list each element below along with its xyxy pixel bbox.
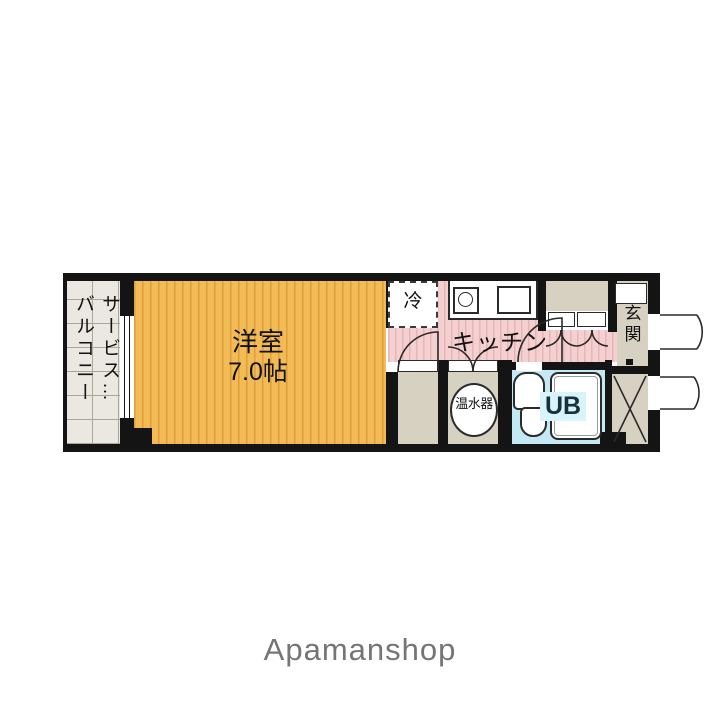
- entrance-door-leaf-top: [660, 315, 697, 349]
- meterbox-door-arc: [694, 377, 699, 409]
- floorplan: 冷 洋室 7.0帖 キッチン 玄関 温水器: [0, 0, 720, 720]
- storage-door-panel: [398, 360, 438, 372]
- wall-closet-left: [538, 281, 546, 331]
- water-heater-door-panel: [448, 360, 498, 372]
- service-balcony-label-col1: サービス…: [96, 294, 122, 446]
- bath-door-threshold: [516, 362, 542, 371]
- western-room-name: 洋室: [158, 328, 358, 358]
- wall-bottom: [63, 444, 660, 452]
- water-heater-label: 温水器: [444, 397, 504, 412]
- wall-balcony-room-lower: [120, 418, 134, 444]
- hall-closet-floor: [546, 281, 608, 312]
- window-glass-lines: [124, 316, 130, 418]
- wall-top: [63, 273, 660, 281]
- meterbox-door-leaf: [660, 377, 694, 409]
- entrance-label: 玄関: [621, 304, 641, 366]
- apamanshop-logo: Apamanshop: [0, 632, 720, 668]
- service-balcony-label-col2: バルコニー: [70, 294, 96, 446]
- unit-bath-label: UB: [540, 392, 586, 421]
- western-room-label: 洋室 7.0帖: [158, 328, 358, 387]
- wall-room-storage: [386, 372, 398, 444]
- pillar-room-corner: [134, 428, 152, 444]
- hall-closet-door-left: [548, 312, 575, 327]
- kitchen-stove: [497, 286, 531, 314]
- pillar-bath-corner: [600, 432, 626, 444]
- kitchen-faucet-circle: [458, 292, 473, 307]
- refrigerator-space: 冷: [388, 281, 438, 328]
- wall-right-lower: [648, 410, 660, 452]
- entrance-door-arc: [697, 315, 702, 349]
- wall-balcony-outer: [63, 273, 67, 452]
- hall-closet-door-right: [577, 312, 606, 327]
- wall-entrance-bottom: [612, 366, 650, 374]
- shoe-cabinet: [615, 283, 647, 304]
- kitchen-label: キッチン: [420, 329, 580, 355]
- wall-balcony-room-upper: [120, 281, 134, 316]
- storage-box-floor: [396, 372, 440, 444]
- service-balcony-label: サービス… バルコニー: [70, 294, 122, 446]
- refrigerator-label: 冷: [403, 291, 422, 312]
- wall-right-upper: [648, 273, 660, 314]
- western-room-size: 7.0帖: [158, 358, 358, 387]
